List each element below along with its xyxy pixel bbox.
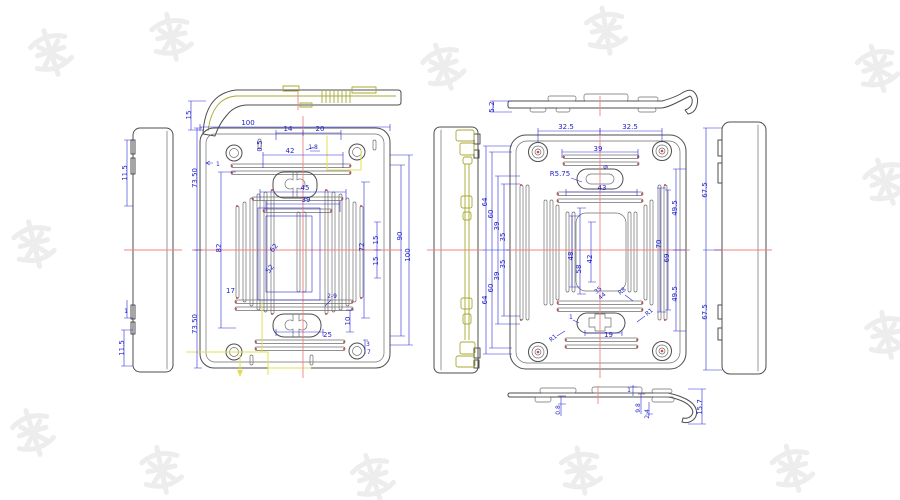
dim-label: 90 bbox=[396, 232, 404, 241]
dim-label: 60 bbox=[487, 210, 495, 219]
dim-label: 35 bbox=[499, 233, 507, 242]
right-top-profile-view: 5.2 bbox=[488, 90, 698, 116]
dim-label: 32.5 bbox=[558, 123, 574, 131]
dim-label: 64 bbox=[481, 197, 489, 206]
dim-label: 9 bbox=[603, 165, 610, 169]
dim-label: 7 bbox=[367, 349, 371, 356]
dim-label: 1 bbox=[216, 161, 220, 168]
dim-label: 15.7 bbox=[696, 399, 704, 415]
dim-label: 15 bbox=[372, 236, 380, 245]
dim-label: 1 bbox=[124, 308, 128, 315]
olive-core-profile bbox=[456, 130, 475, 367]
dim-label: 58 bbox=[575, 265, 583, 274]
dim-label: 11.5 bbox=[121, 165, 129, 181]
dim-label: 64 bbox=[481, 295, 489, 304]
dim-label: 15 bbox=[372, 257, 380, 266]
dim-label: 15 bbox=[185, 111, 193, 120]
dim-15: 15 bbox=[185, 101, 206, 130]
dim-label: 39 bbox=[302, 196, 311, 204]
dim-label: 10 bbox=[344, 317, 352, 326]
dim-label: 9.8 bbox=[635, 403, 642, 413]
dim-label: 19 bbox=[604, 331, 613, 339]
dim-label: R8 bbox=[617, 286, 628, 297]
dim-label: 1 bbox=[627, 387, 631, 394]
dim-label: 42 bbox=[586, 255, 594, 264]
dim-label: 39 bbox=[493, 222, 501, 231]
dim-label: 72 bbox=[358, 243, 366, 252]
dim-label: 60 bbox=[487, 284, 495, 293]
dim-label: 73.50 bbox=[191, 314, 199, 334]
right-side-view: 67.5 67.5 bbox=[701, 122, 772, 374]
dim-label: 73.50 bbox=[191, 168, 199, 188]
dim-label: 42 bbox=[286, 147, 295, 155]
middle-side-view bbox=[427, 127, 484, 373]
construction-arrow bbox=[237, 370, 243, 377]
dim-label: 45 bbox=[301, 184, 310, 192]
dim-label: 0.8 bbox=[555, 405, 562, 415]
dim-label: 32.5 bbox=[622, 123, 638, 131]
dim-label: 82 bbox=[215, 244, 223, 253]
dim-label: 67.5 bbox=[701, 304, 709, 320]
drawing-sheet: 15 11.5 1 11.5 bbox=[0, 0, 900, 500]
dim-label: 14 bbox=[284, 125, 293, 133]
dim-label: 0.5 bbox=[256, 140, 264, 151]
dim-label: 11.5 bbox=[118, 340, 126, 356]
dim-label: 39 bbox=[594, 145, 603, 153]
dim-label: 35 bbox=[499, 260, 507, 269]
bottom-slot bbox=[577, 313, 625, 333]
right-side-dims: 67.5 67.5 bbox=[701, 128, 722, 370]
dim-label: 62 bbox=[268, 242, 280, 254]
dim-label: 48 bbox=[567, 252, 575, 261]
rib-columns bbox=[520, 185, 667, 320]
cad-drawing-canvas: 15 11.5 1 11.5 bbox=[0, 0, 900, 500]
center-pocket bbox=[576, 213, 626, 291]
dim-label: 1 bbox=[569, 314, 573, 321]
dim-label: 49.5 bbox=[671, 286, 679, 302]
dim-label: 69 bbox=[663, 254, 671, 263]
dim-label: R1 bbox=[548, 333, 559, 344]
dim-label: R5.75 bbox=[550, 170, 570, 178]
dim-label: 100 bbox=[241, 119, 254, 127]
dim-label: 100 bbox=[404, 248, 412, 261]
dim-label: 39 bbox=[493, 272, 501, 281]
rib-cluster-left bbox=[236, 190, 274, 314]
dim-label: 43 bbox=[598, 184, 607, 192]
dim-label: 5.2 bbox=[488, 101, 496, 112]
dim-label: 70 bbox=[655, 240, 663, 249]
dim-label: 2-9 bbox=[327, 293, 337, 300]
dim-label: R1 bbox=[644, 307, 655, 318]
bottom-slot bbox=[273, 314, 321, 337]
right-main-view bbox=[506, 128, 690, 378]
dim-label: 3 bbox=[366, 341, 370, 348]
left-main-dims: 100 14 20 0.5 1.8 1 42 45 39 73.50 73.50… bbox=[191, 119, 413, 368]
dim-label: 49.5 bbox=[671, 200, 679, 216]
right-bottom-profile-view: 0.8 1 9.8 2.4 15.7 bbox=[508, 385, 706, 424]
top-slot bbox=[273, 172, 317, 198]
dim-label: 17 bbox=[226, 287, 235, 295]
dim-label: 20 bbox=[316, 125, 325, 133]
dim-label: 67.5 bbox=[701, 182, 709, 198]
left-side-view: 11.5 1 11.5 bbox=[118, 128, 182, 372]
screw-holes bbox=[226, 144, 365, 360]
dim-label: 25 bbox=[323, 331, 332, 339]
dim-label: 2.4 bbox=[644, 409, 651, 419]
